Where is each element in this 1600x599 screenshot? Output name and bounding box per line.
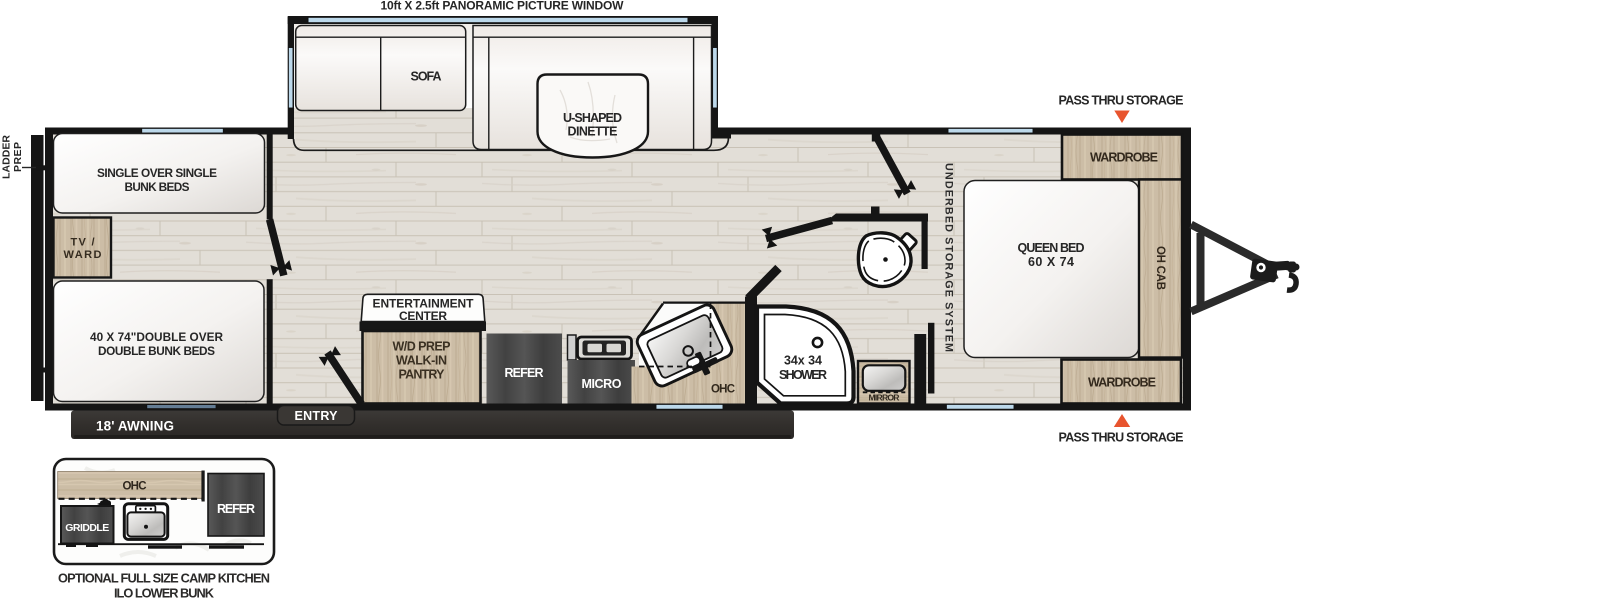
svg-text:SINGLE OVER SINGLE: SINGLE OVER SINGLE bbox=[97, 166, 217, 180]
svg-text:34x 34: 34x 34 bbox=[784, 354, 822, 368]
svg-text:MICRO: MICRO bbox=[582, 377, 622, 391]
svg-text:REFER: REFER bbox=[505, 366, 544, 380]
svg-text:DINETTE: DINETTE bbox=[568, 125, 618, 139]
svg-text:WARDROBE: WARDROBE bbox=[1090, 151, 1158, 165]
svg-text:DOUBLE BUNK BEDS: DOUBLE BUNK BEDS bbox=[98, 344, 215, 358]
svg-text:W/D PREP: W/D PREP bbox=[393, 340, 451, 354]
svg-text:OPTIONAL FULL SIZE CAMP KITCHE: OPTIONAL FULL SIZE CAMP KITCHEN bbox=[58, 571, 270, 586]
svg-text:GRIDDLE: GRIDDLE bbox=[65, 522, 109, 534]
svg-text:18' AWNING: 18' AWNING bbox=[96, 419, 174, 434]
svg-text:PASS THRU STORAGE: PASS THRU STORAGE bbox=[1059, 431, 1184, 445]
svg-text:REFER: REFER bbox=[217, 502, 255, 516]
svg-text:WALK-IN: WALK-IN bbox=[396, 354, 447, 368]
svg-text:OH CAB: OH CAB bbox=[1154, 246, 1166, 290]
svg-text:40 X 74"DOUBLE OVER: 40 X 74"DOUBLE OVER bbox=[90, 330, 223, 344]
svg-text:10ft X 2.5ft PANORAMIC PICTURE: 10ft X 2.5ft PANORAMIC PICTURE WINDOW bbox=[381, 0, 625, 13]
svg-text:ILO LOWER BUNK: ILO LOWER BUNK bbox=[114, 586, 215, 599]
svg-text:WARD: WARD bbox=[64, 249, 102, 261]
svg-text:OHC: OHC bbox=[123, 481, 147, 493]
svg-text:PASS THRU STORAGE: PASS THRU STORAGE bbox=[1059, 94, 1184, 108]
svg-text:MIRROR: MIRROR bbox=[869, 393, 901, 403]
svg-text:ENTRY: ENTRY bbox=[295, 409, 339, 423]
svg-text:CENTER: CENTER bbox=[399, 309, 447, 323]
svg-text:OHC: OHC bbox=[711, 384, 735, 396]
svg-text:QUEEN BED: QUEEN BED bbox=[1018, 241, 1085, 255]
svg-text:UNDERBED STORAGE SYSTEM: UNDERBED STORAGE SYSTEM bbox=[943, 163, 955, 352]
svg-text:WARDROBE: WARDROBE bbox=[1088, 376, 1156, 390]
svg-text:SHOWER: SHOWER bbox=[779, 368, 827, 382]
svg-text:U-SHAPED: U-SHAPED bbox=[563, 111, 622, 125]
svg-text:LADDER: LADDER bbox=[1, 135, 13, 179]
svg-text:PANTRY: PANTRY bbox=[399, 368, 446, 382]
svg-text:SOFA: SOFA bbox=[411, 70, 442, 84]
svg-text:60 X 74: 60 X 74 bbox=[1028, 255, 1074, 269]
svg-text:BUNK BEDS: BUNK BEDS bbox=[125, 180, 190, 194]
svg-text:TV /: TV / bbox=[71, 237, 95, 249]
